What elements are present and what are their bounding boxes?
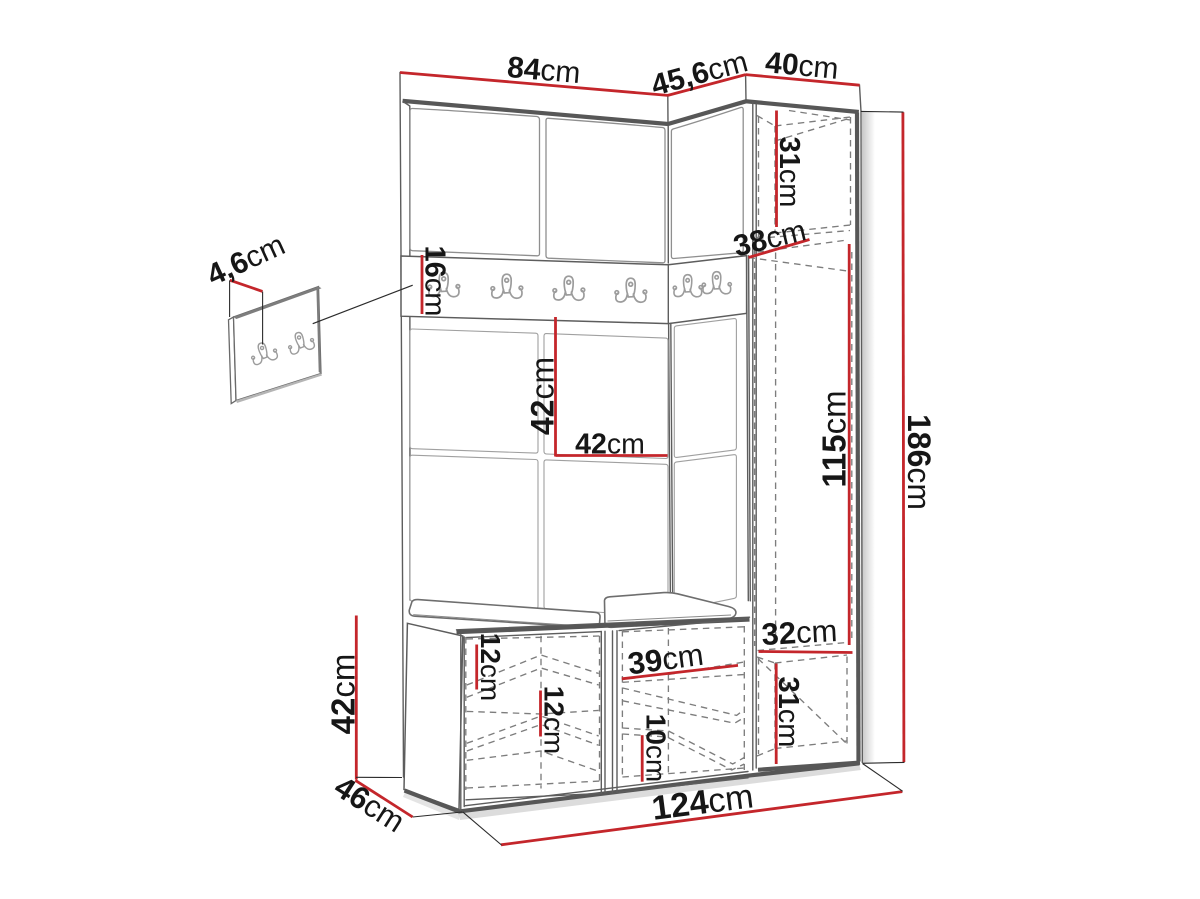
svg-text:31cm: 31cm	[773, 137, 805, 208]
svg-text:42cm: 42cm	[325, 654, 362, 735]
svg-text:10cm: 10cm	[641, 714, 672, 782]
svg-text:115cm: 115cm	[816, 390, 853, 487]
svg-text:12cm: 12cm	[475, 633, 506, 701]
svg-text:40cm: 40cm	[764, 46, 840, 86]
svg-text:84cm: 84cm	[506, 51, 582, 90]
svg-text:42cm: 42cm	[525, 357, 561, 435]
svg-text:186cm: 186cm	[901, 414, 937, 510]
svg-text:16cm: 16cm	[419, 246, 451, 317]
svg-text:12cm: 12cm	[539, 686, 570, 754]
svg-text:42cm: 42cm	[575, 429, 645, 461]
svg-text:31cm: 31cm	[772, 677, 804, 748]
svg-text:32cm: 32cm	[761, 613, 839, 652]
